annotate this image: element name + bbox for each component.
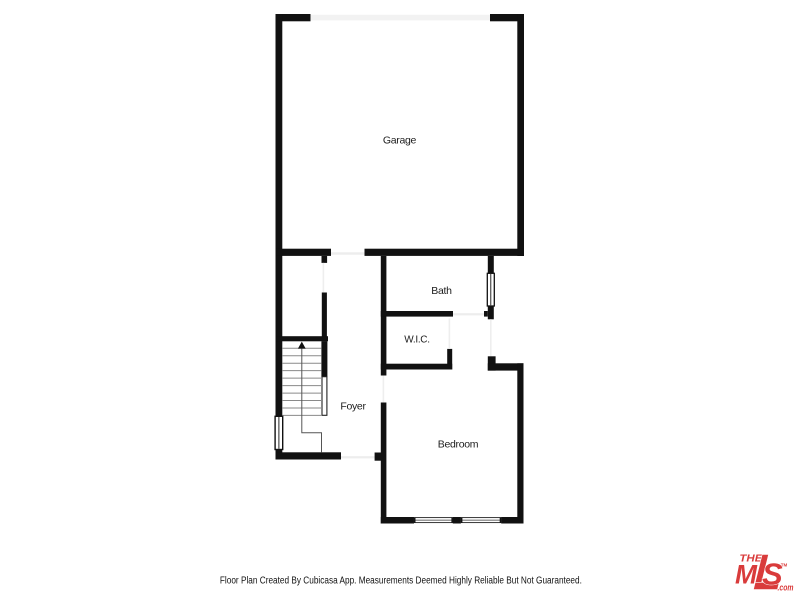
svg-text:.com: .com [778,582,794,592]
svg-text:Bath: Bath [431,285,452,297]
svg-text:Garage: Garage [383,135,417,147]
svg-text:M: M [735,559,757,589]
svg-text:Floor Plan Created By Cubicasa: Floor Plan Created By Cubicasa App. Meas… [220,576,582,587]
svg-text:Foyer: Foyer [340,401,366,413]
svg-text:TM: TM [781,563,788,568]
svg-text:W.I.C.: W.I.C. [404,335,429,346]
svg-text:Bedroom: Bedroom [438,439,479,451]
